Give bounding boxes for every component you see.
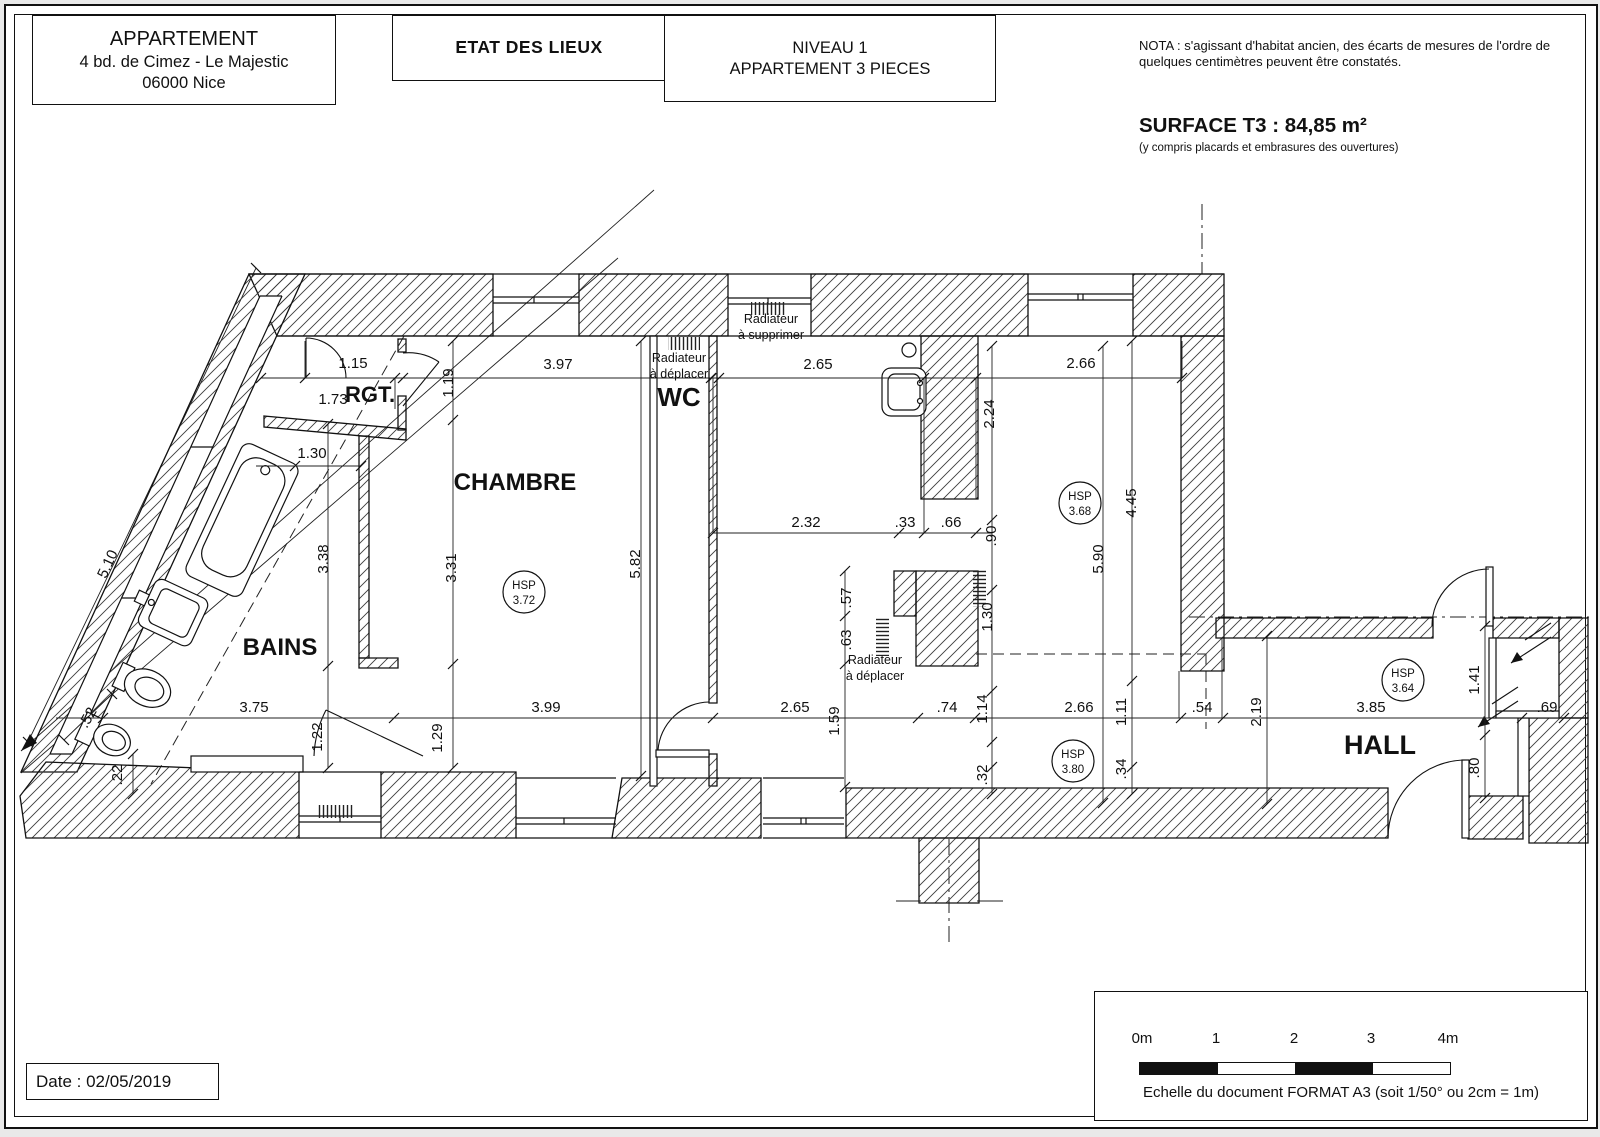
wc-hand-basin: [882, 343, 926, 416]
room-label: WC: [657, 382, 701, 412]
svg-text:3.64: 3.64: [1392, 683, 1415, 695]
svg-text:HSP: HSP: [1068, 491, 1092, 503]
dimension-label: 2.24: [981, 399, 998, 428]
scale-bar: [1139, 1062, 1451, 1075]
dimension-label: 1.59: [826, 706, 843, 735]
svg-text:Radiateur: Radiateur: [744, 312, 798, 326]
svg-text:3.72: 3.72: [513, 595, 535, 607]
radiator-annotations: Radiateurà supprimerRadiateurà déplacerR…: [650, 312, 904, 683]
svg-text:HSP: HSP: [1061, 749, 1085, 761]
svg-text:à supprimer: à supprimer: [738, 328, 804, 342]
address-line: 4 bd. de Cimez - Le Majestic: [79, 52, 288, 73]
floor-plan-drawing: 1.151.731.193.972.652.662.241.303.383.31…: [6, 6, 1600, 1137]
svg-text:HSP: HSP: [1391, 668, 1415, 680]
dimension-label: 2.66: [1066, 355, 1095, 372]
scale-tick-label: 1: [1212, 1030, 1220, 1047]
date-value: Date : 02/05/2019: [36, 1072, 171, 1092]
dimension-label: 2.32: [791, 514, 820, 531]
radiator-icon: [668, 337, 700, 350]
room-labels: RGT.CHAMBREWCBAINSHALL: [243, 382, 1416, 760]
svg-text:3.68: 3.68: [1069, 506, 1091, 518]
svg-text:à déplacer: à déplacer: [846, 669, 904, 683]
radiator-annotation: Radiateurà supprimer: [738, 312, 804, 342]
scale-caption: Echelle du document FORMAT A3 (soit 1/50…: [1095, 1084, 1587, 1101]
dimension-label: 3.31: [443, 553, 460, 582]
radiator-icon: [876, 618, 889, 656]
scale-tick-label: 4m: [1438, 1030, 1459, 1047]
room-label: RGT.: [345, 382, 395, 407]
dimension-label: 3.97: [543, 356, 572, 373]
surface-title: SURFACE T3 : 84,85 m²: [1139, 114, 1367, 138]
ceiling-height-marker: HSP3.72: [503, 571, 545, 613]
building-type: APPARTEMENT: [110, 27, 258, 52]
dimension-label: 4.45: [1123, 488, 1140, 517]
dimension-label: .57: [838, 588, 855, 609]
nota-text: NOTA : s'agissant d'habitat ancien, des …: [1139, 38, 1591, 70]
dimension-label: 1.11: [1113, 698, 1130, 726]
radiator-icon: [973, 570, 986, 607]
dimension-label: 2.66: [1064, 699, 1093, 716]
svg-text:à déplacer: à déplacer: [650, 367, 708, 381]
dimension-label: 2.65: [780, 699, 809, 716]
surface-subtitle: (y compris placards et embrasures des ou…: [1139, 142, 1399, 154]
dimension-label: 3.99: [531, 699, 560, 716]
drawing-sheet: 1.151.731.193.972.652.662.241.303.383.31…: [4, 4, 1598, 1129]
apartment-line: APPARTEMENT 3 PIECES: [730, 59, 931, 80]
dimension-label: .74: [937, 699, 958, 716]
dimension-label: 1.30: [297, 445, 326, 462]
dimension-label: .32: [974, 765, 991, 786]
scale-box: 0m 1 2 3 4m Echelle du document FORMAT A…: [1094, 991, 1588, 1121]
dimension-label: 3.75: [239, 699, 268, 716]
ceiling-height-marker: HSP3.68: [1059, 482, 1101, 524]
dimension-label: .66: [941, 514, 962, 531]
svg-text:HSP: HSP: [512, 580, 536, 592]
dimension-label: 5.90: [1090, 544, 1107, 573]
svg-text:Radiateur: Radiateur: [652, 351, 706, 365]
dimension-label: .54: [1192, 699, 1213, 716]
dimension-label: 1.41: [1466, 665, 1483, 694]
document-title: ETAT DES LIEUX: [455, 37, 602, 59]
thin-partitions: [191, 336, 1559, 796]
svg-text:Radiateur: Radiateur: [848, 653, 902, 667]
dimension-label: .22: [109, 765, 126, 786]
room-label: BAINS: [243, 634, 318, 661]
scale-tick-label: 2: [1290, 1030, 1298, 1047]
dimension-label: 1.73: [318, 391, 347, 408]
dimension-label: 3.38: [315, 544, 332, 573]
dimension-label: 1.19: [440, 368, 457, 397]
dimension-label: .63: [838, 630, 855, 651]
ceiling-height-marker: HSP3.64: [1382, 659, 1424, 701]
dimension-label: 5.82: [627, 549, 644, 578]
radiator-annotation: Radiateurà déplacer: [650, 351, 708, 381]
dimension-label: 1.30: [979, 602, 996, 631]
dimension-label: 3.85: [1356, 699, 1385, 716]
dimension-label: 1.15: [338, 355, 367, 372]
title-block-address: APPARTEMENT 4 bd. de Cimez - Le Majestic…: [32, 15, 336, 105]
city-line: 06000 Nice: [142, 73, 225, 94]
title-block-document-type: ETAT DES LIEUX: [392, 15, 666, 81]
dimension-label: .90: [983, 526, 1000, 547]
title-block-level: NIVEAU 1 APPARTEMENT 3 PIECES: [664, 15, 996, 102]
dimension-label: 1.14: [974, 694, 991, 723]
date-box: Date : 02/05/2019: [26, 1063, 219, 1100]
dimension-label: .34: [1113, 759, 1130, 780]
dimension-label: 2.19: [1248, 697, 1265, 726]
dimension-label: .80: [1466, 758, 1483, 779]
dimension-label: .69: [1537, 699, 1558, 716]
dimension-label: 2.65: [803, 356, 832, 373]
scale-tick-label: 0m: [1132, 1030, 1153, 1047]
level-line: NIVEAU 1: [792, 38, 867, 59]
dimension-label: 1.29: [429, 723, 446, 752]
scale-tick-label: 3: [1367, 1030, 1375, 1047]
room-label: HALL: [1344, 730, 1416, 760]
radiator-annotation: Radiateurà déplacer: [846, 653, 904, 683]
svg-text:3.80: 3.80: [1062, 764, 1084, 776]
room-label: CHAMBRE: [454, 469, 577, 496]
dimension-label: 1.22: [309, 722, 326, 751]
radiator-icon: [318, 805, 353, 818]
ceiling-height-marker: HSP3.80: [1052, 740, 1094, 782]
dimension-label: .33: [895, 514, 916, 531]
